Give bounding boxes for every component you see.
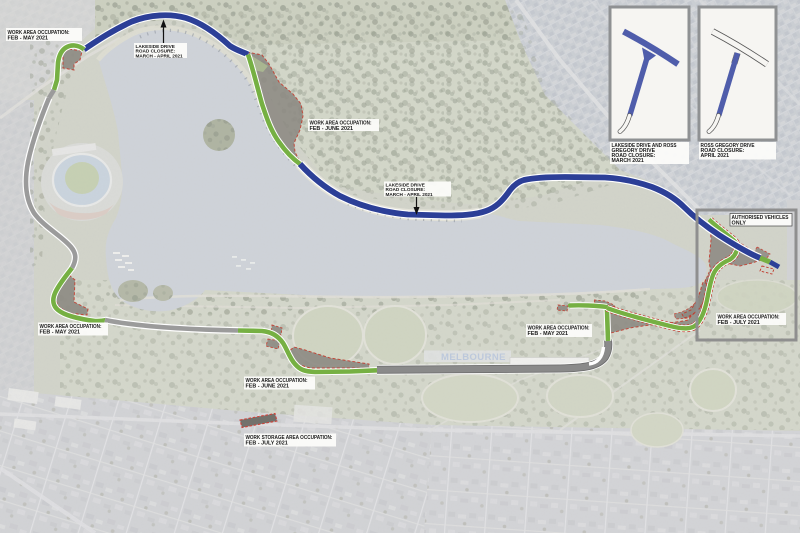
svg-text:MARCH - APRIL 2021: MARCH - APRIL 2021 [386,192,434,197]
svg-text:MARCH - APRIL 2021: MARCH - APRIL 2021 [136,53,184,58]
svg-text:MARCH 2021: MARCH 2021 [612,158,644,164]
svg-text:FEB - JULY 2021: FEB - JULY 2021 [718,320,760,326]
svg-text:FEB - JULY 2021: FEB - JULY 2021 [246,441,288,447]
svg-text:FEB - JUNE 2021: FEB - JUNE 2021 [310,126,353,132]
svg-text:FEB - MAY 2021: FEB - MAY 2021 [8,36,48,42]
svg-text:FEB - MAY 2021: FEB - MAY 2021 [528,331,568,337]
svg-text:FEB - MAY 2021: FEB - MAY 2021 [40,330,80,336]
svg-text:APRIL 2021: APRIL 2021 [701,153,730,159]
svg-text:FEB - JUNE 2021: FEB - JUNE 2021 [246,384,289,390]
svg-text:ONLY: ONLY [732,221,747,227]
